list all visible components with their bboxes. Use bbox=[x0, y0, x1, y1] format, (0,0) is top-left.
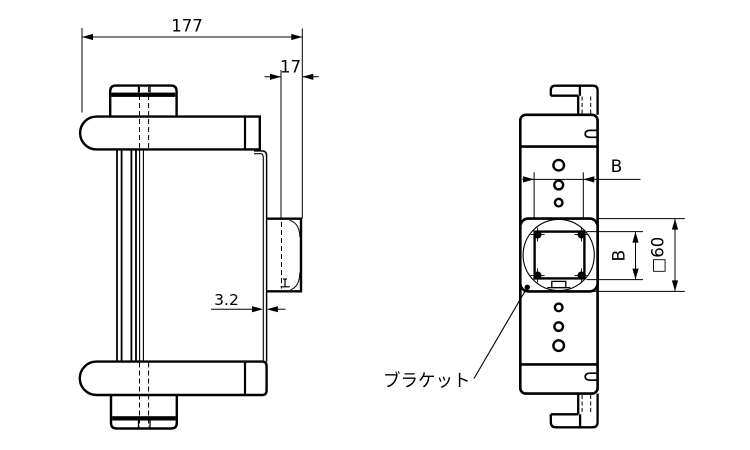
dim-bv-arrow-top bbox=[632, 232, 638, 243]
bracket-leader-dot bbox=[525, 285, 530, 290]
front-top-hook-hidden bbox=[582, 97, 591, 115]
side-plate-inner bbox=[254, 154, 263, 362]
dim-177-text: 177 bbox=[171, 17, 203, 36]
side-top-tab bbox=[110, 86, 176, 117]
side-rail-right bbox=[131, 149, 136, 361]
dim-3-2-arrow-right bbox=[267, 306, 278, 312]
technical-drawing: 177 17 3.2 bbox=[0, 0, 750, 450]
side-mount-box-foot-mark bbox=[281, 279, 290, 287]
dim-3-2-text: 3.2 bbox=[214, 291, 239, 309]
dim-bv-arrow-bottom bbox=[632, 269, 638, 280]
bracket-leader-line bbox=[474, 289, 526, 378]
bracket-label: ブラケット bbox=[383, 371, 471, 392]
side-plate-outer bbox=[254, 151, 267, 362]
front-hole-top-2 bbox=[554, 181, 563, 190]
front-notch-top bbox=[585, 130, 597, 137]
dim-17: 17 bbox=[265, 58, 319, 219]
side-bottom-tab-stripe bbox=[112, 416, 175, 420]
side-top-tab-stripe bbox=[111, 93, 175, 97]
side-mount-box bbox=[267, 219, 301, 292]
dim-17-text: 17 bbox=[280, 58, 301, 77]
bracket-callout: ブラケット bbox=[383, 289, 526, 391]
side-thin-plate bbox=[140, 149, 144, 361]
bracket-outer-square bbox=[520, 219, 597, 292]
dim-bv-text: B bbox=[610, 250, 630, 262]
dim-3-2: 3.2 bbox=[211, 291, 286, 313]
front-bottom-hook-hidden bbox=[582, 395, 591, 413]
corner-hole-1 bbox=[534, 231, 542, 239]
dim-60-arrow-bottom bbox=[672, 280, 678, 291]
front-hole-bottom-2 bbox=[554, 322, 563, 331]
dim-b-horizontal: B bbox=[522, 157, 640, 218]
front-hole-top-1 bbox=[553, 160, 564, 171]
side-mount-box-arc-bottom bbox=[291, 273, 300, 290]
drawing-canvas: 177 17 3.2 bbox=[0, 0, 750, 450]
dim-square-60: □60 bbox=[590, 219, 685, 292]
front-view: B bbox=[383, 86, 685, 428]
dim-bh-text: B bbox=[611, 157, 623, 177]
corner-hole-3 bbox=[534, 272, 542, 280]
front-notch-bottom bbox=[585, 373, 597, 380]
dim-60-text: □60 bbox=[649, 237, 668, 274]
side-top-arm bbox=[80, 117, 260, 150]
side-mount-box-arc-top bbox=[290, 220, 300, 237]
front-hole-bottom-1 bbox=[555, 304, 563, 312]
corner-hole-2 bbox=[578, 231, 586, 239]
side-bottom-tab bbox=[111, 395, 177, 429]
dim-3-2-arrow-left bbox=[252, 306, 263, 312]
front-hole-bottom-3 bbox=[553, 340, 564, 351]
dim-177-arrow-left bbox=[82, 34, 93, 40]
front-hole-top-3 bbox=[555, 199, 563, 207]
corner-hole-4 bbox=[578, 272, 586, 280]
dim-60-arrow-top bbox=[672, 219, 678, 230]
dim-bh-arrow-left bbox=[523, 176, 534, 182]
dim-bh-arrow-right bbox=[583, 176, 594, 182]
side-view: 177 17 3.2 bbox=[80, 17, 319, 429]
dim-17-arrow-right bbox=[302, 74, 313, 80]
side-rail-left bbox=[117, 149, 122, 361]
dim-177-arrow-right bbox=[291, 34, 302, 40]
front-bracket bbox=[520, 219, 597, 292]
side-bottom-arm bbox=[80, 362, 267, 395]
